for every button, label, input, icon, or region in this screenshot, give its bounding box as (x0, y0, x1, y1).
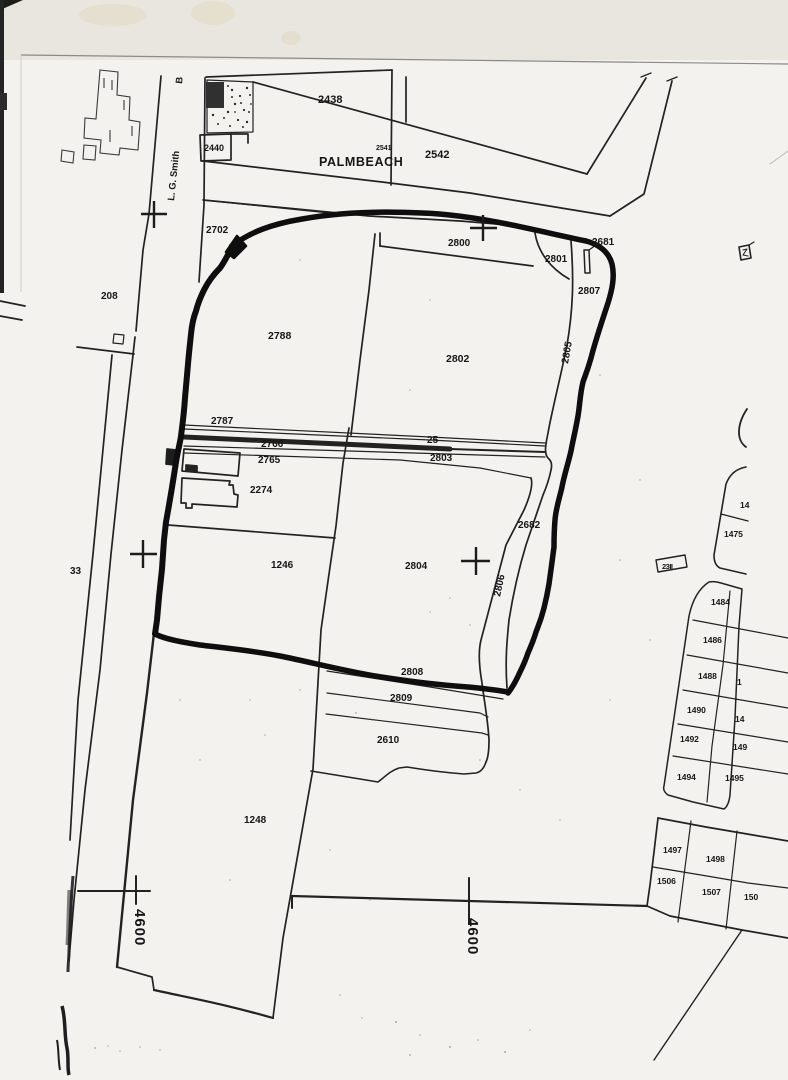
svg-text:1506: 1506 (657, 876, 676, 886)
svg-text:2440: 2440 (204, 143, 224, 153)
svg-text:1486: 1486 (703, 635, 722, 645)
svg-text:2681: 2681 (592, 237, 615, 248)
svg-text:33: 33 (70, 566, 82, 577)
svg-text:14: 14 (735, 714, 745, 724)
svg-text:2765: 2765 (258, 455, 281, 466)
svg-text:2787: 2787 (211, 416, 234, 427)
svg-text:1497: 1497 (663, 845, 682, 855)
svg-text:2803: 2803 (430, 453, 453, 464)
svg-text:1475: 1475 (724, 529, 743, 539)
svg-text:2766: 2766 (261, 439, 284, 450)
svg-text:1246: 1246 (271, 560, 294, 571)
svg-text:4600: 4600 (464, 918, 481, 955)
svg-text:B: B (174, 76, 186, 84)
svg-text:2804: 2804 (405, 561, 428, 572)
svg-text:1492: 1492 (680, 734, 699, 744)
svg-text:2682: 2682 (518, 520, 541, 531)
svg-text:2807: 2807 (578, 286, 601, 297)
svg-text:1498: 1498 (706, 854, 725, 864)
svg-text:1495: 1495 (725, 773, 744, 783)
svg-text:23II: 23II (662, 562, 673, 571)
svg-text:2788: 2788 (268, 330, 292, 342)
svg-text:2610: 2610 (377, 735, 400, 746)
svg-text:2438: 2438 (318, 94, 342, 106)
svg-text:25: 25 (427, 435, 439, 446)
svg-text:2542: 2542 (425, 149, 449, 161)
svg-text:2800: 2800 (448, 238, 471, 249)
svg-text:1: 1 (737, 677, 742, 687)
svg-text:2801: 2801 (545, 254, 568, 265)
svg-text:1484: 1484 (711, 597, 730, 607)
svg-text:2702: 2702 (206, 225, 229, 236)
svg-text:PALMBEACH: PALMBEACH (319, 155, 403, 169)
svg-text:2809: 2809 (390, 693, 413, 704)
svg-text:1507: 1507 (702, 887, 721, 897)
svg-text:2274: 2274 (250, 485, 273, 496)
svg-text:1490: 1490 (687, 705, 706, 715)
svg-text:208: 208 (101, 291, 118, 302)
svg-text:14: 14 (740, 500, 750, 510)
svg-text:1248: 1248 (244, 815, 267, 826)
svg-text:2541: 2541 (376, 145, 392, 152)
svg-text:4600: 4600 (131, 909, 148, 946)
svg-text:2802: 2802 (446, 353, 470, 365)
svg-text:1488: 1488 (698, 671, 717, 681)
svg-text:149: 149 (733, 742, 747, 752)
svg-text:1494: 1494 (677, 772, 696, 782)
svg-text:150: 150 (744, 892, 758, 902)
svg-text:2808: 2808 (401, 667, 424, 678)
